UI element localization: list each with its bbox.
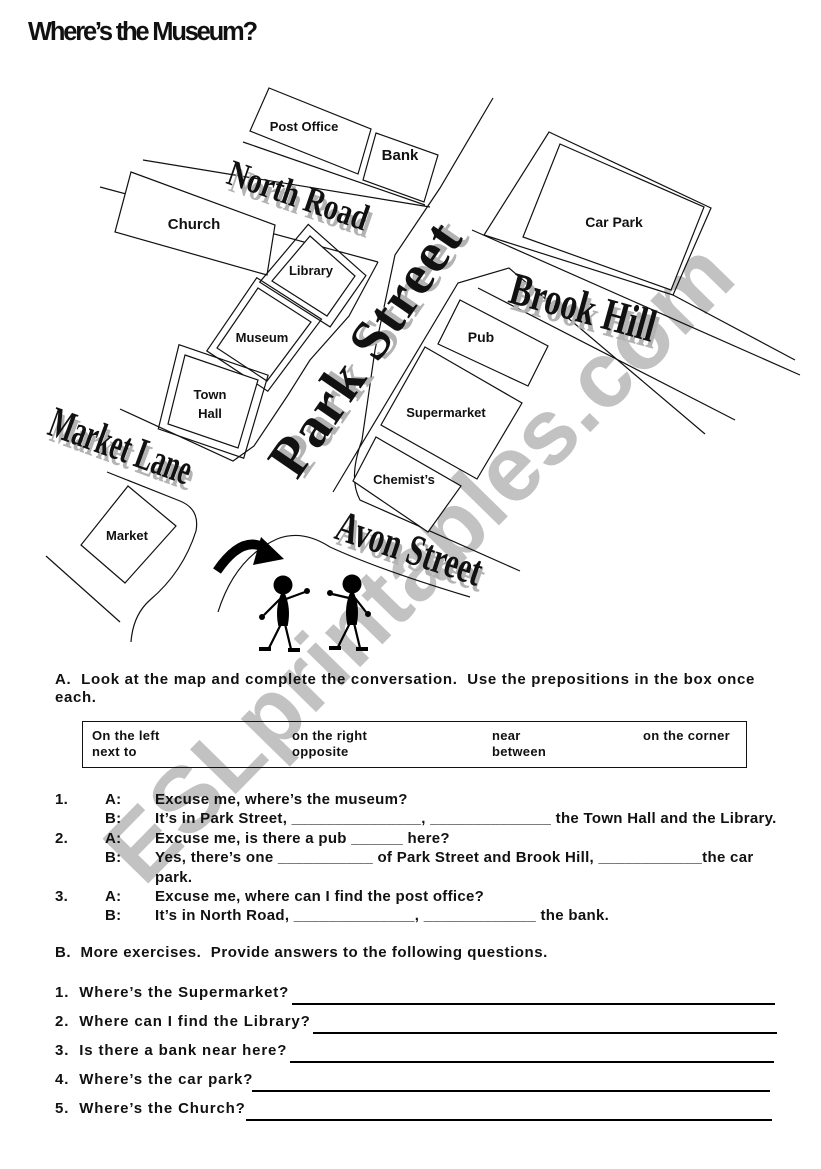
svg-text:Church: Church (168, 216, 221, 233)
svg-text:Chemist’s: Chemist’s (373, 472, 435, 487)
svg-text:Bank: Bank (382, 147, 419, 164)
svg-text:Pub: Pub (468, 329, 494, 345)
svg-text:Town: Town (194, 387, 227, 402)
svg-text:Car Park: Car Park (585, 214, 643, 230)
svg-text:Library: Library (289, 263, 334, 278)
svg-text:Post Office: Post Office (270, 119, 339, 134)
svg-text:Hall: Hall (198, 406, 222, 421)
svg-text:Supermarket: Supermarket (406, 405, 486, 420)
svg-text:Market: Market (106, 528, 149, 543)
svg-text:Museum: Museum (236, 330, 289, 345)
